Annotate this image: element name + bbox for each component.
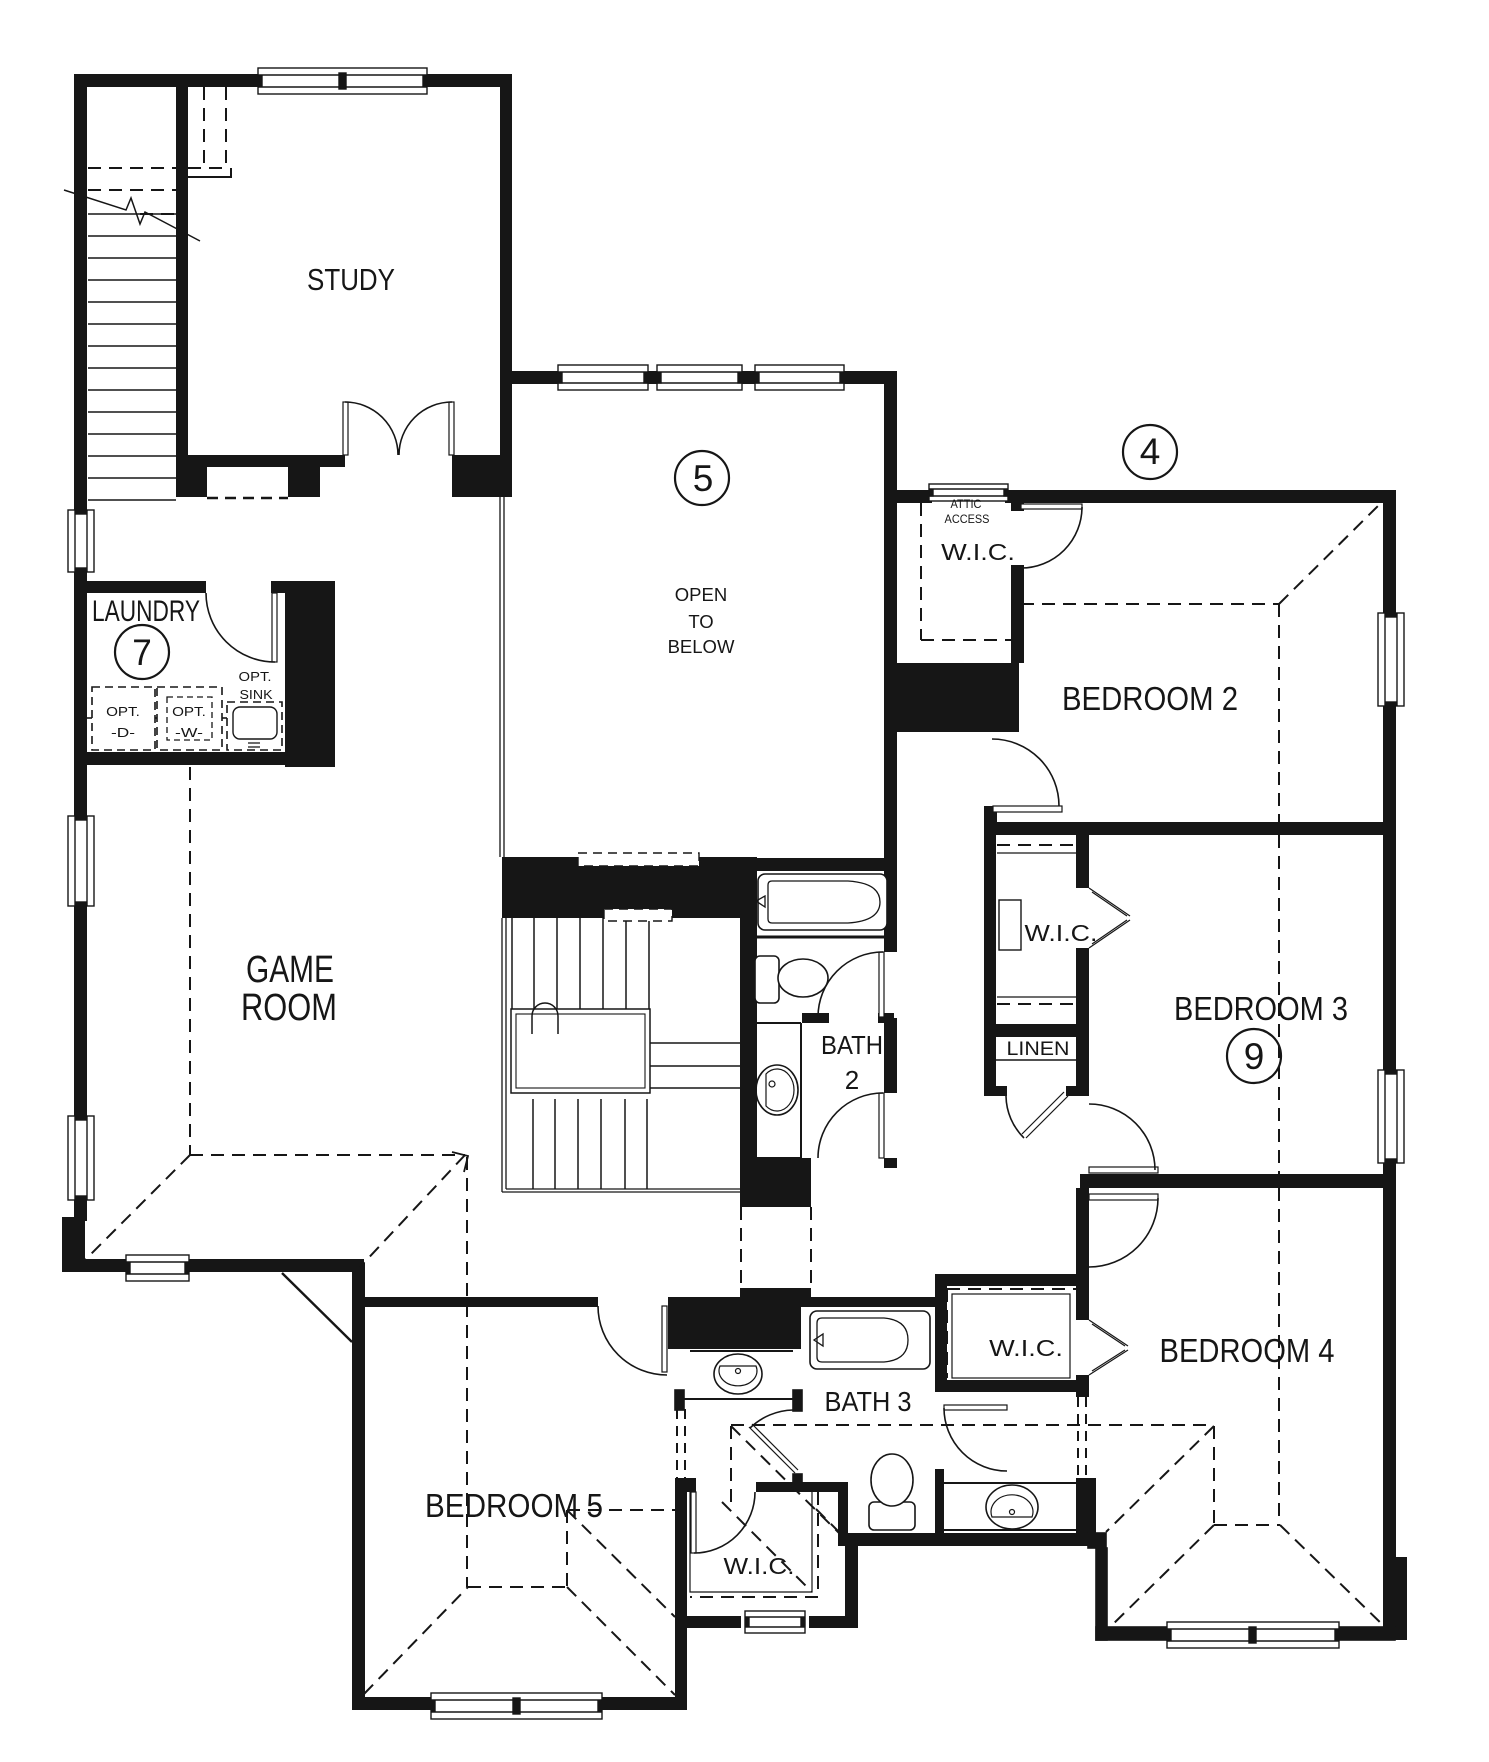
svg-text:4: 4 [1140,431,1161,472]
svg-text:LINEN: LINEN [1007,1039,1070,1060]
svg-text:ACCESS: ACCESS [945,514,990,527]
svg-text:BEDROOM 5: BEDROOM 5 [425,1488,603,1525]
svg-text:OPEN: OPEN [675,584,727,605]
svg-text:W.I.C.: W.I.C. [1025,921,1098,947]
svg-text:SINK: SINK [239,688,272,702]
svg-text:BEDROOM 3: BEDROOM 3 [1174,990,1348,1027]
svg-text:BEDROOM 4: BEDROOM 4 [1160,1332,1335,1369]
svg-text:-D-: -D- [111,726,135,740]
svg-text:LAUNDRY: LAUNDRY [92,594,200,628]
svg-text:BATH 3: BATH 3 [825,1386,912,1417]
svg-text:BATH: BATH [821,1031,883,1060]
svg-text:BEDROOM 2: BEDROOM 2 [1062,680,1238,717]
svg-text:ROOM: ROOM [241,987,337,1029]
svg-text:2: 2 [845,1065,859,1095]
svg-text:STUDY: STUDY [307,263,395,298]
svg-text:W.I.C.: W.I.C. [941,540,1015,566]
svg-text:W.I.C.: W.I.C. [989,1336,1063,1362]
svg-text:OPT.: OPT. [106,704,140,719]
svg-text:-W-: -W- [175,726,203,740]
svg-text:W.I.C.: W.I.C. [724,1554,795,1579]
svg-text:OPT.: OPT. [172,704,206,719]
svg-text:BELOW: BELOW [668,636,735,657]
svg-text:5: 5 [693,458,714,499]
svg-text:ATTIC: ATTIC [951,499,982,512]
svg-text:GAME: GAME [246,949,334,991]
svg-text:9: 9 [1244,1036,1265,1077]
svg-text:7: 7 [132,631,152,673]
svg-text:TO: TO [688,611,713,632]
svg-text:OPT.: OPT. [239,669,272,684]
